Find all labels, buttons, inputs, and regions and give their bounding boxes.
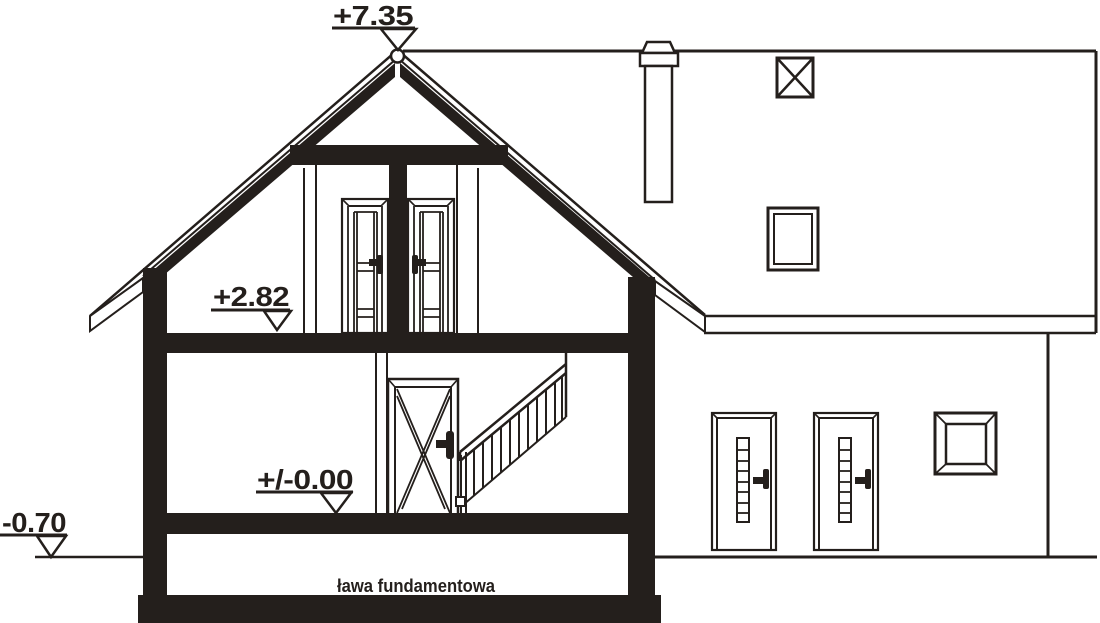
door-handle-stem bbox=[417, 259, 426, 266]
window-inner-frame bbox=[946, 424, 986, 464]
marker-triangle bbox=[264, 311, 291, 330]
bevel-corner-line bbox=[935, 413, 946, 424]
door-brace-diagonal bbox=[402, 396, 450, 509]
roof-sheathing-line bbox=[400, 60, 655, 280]
door-brace-diagonal bbox=[397, 396, 445, 509]
marker-triangle bbox=[37, 536, 66, 557]
ground-floor-door bbox=[388, 379, 458, 516]
elevation-marker-ground-floor: +/-0.00 bbox=[256, 464, 353, 513]
door-handle-stem bbox=[753, 477, 764, 484]
roof-window-inner-frame bbox=[774, 214, 812, 264]
elevation-marker-ground-level: -0.70 bbox=[0, 507, 67, 557]
door-handle bbox=[763, 469, 769, 489]
roof-window bbox=[768, 208, 818, 270]
elevation-label-zero: +/-0.00 bbox=[257, 464, 353, 495]
elevation-label-terrain: -0.70 bbox=[2, 507, 66, 538]
door-handle-stem bbox=[436, 440, 448, 448]
door-handle bbox=[865, 469, 871, 489]
ridge-node-circle bbox=[391, 50, 404, 63]
house-cross-section-drawing: +7.35 +2.82 +/-0.00 -0.70 ława fundament… bbox=[0, 0, 1100, 623]
chimney bbox=[640, 42, 678, 202]
handrail-bottom-line bbox=[460, 373, 566, 461]
roof-window-outer-frame bbox=[768, 208, 818, 270]
balusters bbox=[474, 376, 562, 496]
rafter-right bbox=[400, 63, 655, 296]
marker-triangle bbox=[321, 493, 351, 513]
chimney-cap bbox=[642, 42, 675, 53]
elevation-marker-attic-floor: +2.82 bbox=[211, 281, 291, 330]
chimney-body bbox=[645, 66, 672, 202]
eave-overhang-left bbox=[90, 278, 143, 331]
elevation-window bbox=[935, 413, 996, 474]
ground-floor-room bbox=[376, 353, 566, 516]
foundation-strip-cut bbox=[138, 595, 661, 623]
glazing-bars bbox=[839, 450, 851, 513]
staircase bbox=[456, 353, 566, 514]
side-elevation bbox=[655, 333, 1097, 557]
drawing-canvas: +7.35 +2.82 +/-0.00 -0.70 ława fundament… bbox=[0, 0, 1100, 623]
door-handle-stem bbox=[855, 477, 866, 484]
elevation-label-attic: +2.82 bbox=[213, 281, 289, 312]
glazing-bars bbox=[737, 450, 749, 513]
attic-floor-slab-cut bbox=[143, 333, 655, 353]
wall-left-cut bbox=[143, 268, 167, 623]
handrail-top-line bbox=[460, 364, 566, 452]
eave-overhang-right bbox=[655, 281, 705, 332]
roof-elevation bbox=[403, 42, 1096, 333]
elevation-door-2 bbox=[814, 413, 878, 550]
stair-string-line bbox=[463, 417, 566, 505]
elevation-label-ridge: +7.35 bbox=[333, 0, 413, 31]
chimney-collar bbox=[640, 53, 678, 66]
marker-triangle bbox=[381, 29, 416, 50]
elevation-marker-roof-ridge: +7.35 bbox=[332, 0, 416, 50]
roof-hatch-crossed bbox=[777, 58, 813, 97]
wall-right-cut bbox=[628, 277, 655, 623]
newel-base-block bbox=[456, 497, 465, 506]
elevation-door-1 bbox=[712, 413, 776, 550]
door-handle-stem bbox=[369, 259, 378, 266]
attic-door-right bbox=[408, 199, 454, 333]
attic-door-left bbox=[342, 199, 388, 333]
foundation-label: ława fundamentowa bbox=[337, 576, 496, 596]
attic-partition-wall-cut bbox=[389, 160, 407, 334]
